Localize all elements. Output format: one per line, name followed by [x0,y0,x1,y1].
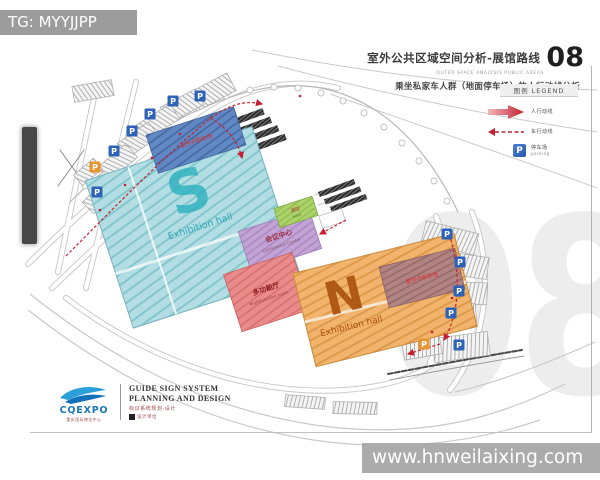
scan-artifact-bar [22,127,37,244]
cqexpo-wing-icon [58,384,110,406]
dashed-red-arrow-icon [486,127,526,137]
agency-name: 设计单位 [137,414,157,420]
solid-red-arrow-icon [486,104,526,120]
parking-badge-letter: P [129,127,135,136]
parking-badge-letter: P [456,287,462,296]
footer-line2: PLANNING AND DESIGN [129,394,231,404]
parking-label-en: parking [531,151,550,156]
agency-row: 设计单位 [129,414,231,420]
site-watermark: www.hnweilaixing.com [362,443,600,473]
parking-badge-letter: P [444,230,450,239]
legend: 图例 LEGEND 人行动线 车行动线 P [486,84,582,164]
tg-badge: TG: MYYJJPP [0,10,137,35]
footer-divider [120,384,121,420]
parking-badge-letter: P [457,258,463,267]
agency-logo-icon [129,414,135,420]
sheet-border-right [591,66,592,433]
parking-badge-letter: P [94,188,100,197]
parking-badge-letter-orange: P [421,340,427,349]
legend-item-parking: P 停车场 parking [486,144,582,157]
parking-badge-letter: P [111,147,117,156]
plaza-structure [319,209,346,229]
footer-line3: 标识系统规划·设计 [129,405,231,412]
legend-label: 停车场 parking [531,145,550,157]
legend-header: 图例 LEGEND [500,84,578,97]
parking-badge-letter-orange: P [92,163,98,172]
sheet-border-bottom [30,432,591,433]
legend-label: 车行动线 [531,129,553,136]
parking-badge-letter: P [197,92,203,101]
page-number: 08 [546,44,584,71]
footer-line1: GUIDE SIGN SYSTEM [129,384,231,394]
legend-item-secondary-route: 车行动线 [486,127,582,137]
parking-badge-letter: P [170,97,176,106]
parking-badge-letter: P [147,110,153,119]
cqexpo-subtitle: 重庆国际博览中心 [66,417,101,423]
slide: 08 [0,0,600,480]
parking-label-cn: 停车场 [531,145,548,151]
legend-label: 人行动线 [531,109,553,116]
parking-badge-letter: P [448,309,454,318]
parking-badge-letter: P [456,341,462,350]
footer-logo-block: CQEXPO 重庆国际博览中心 GUIDE SIGN SYSTEM PLANNI… [56,384,231,423]
page-title: 室外公共区域空间分析-展馆路线 [367,44,540,66]
parking-icon: P [513,144,526,157]
page-title-en: OUTER SPACE ANALYSIS PUBLIC AREAS [274,71,544,76]
cqexpo-logo: CQEXPO 重庆国际博览中心 [56,384,112,423]
legend-item-main-route: 人行动线 [486,104,582,120]
cqexpo-wordmark: CQEXPO [60,406,109,416]
